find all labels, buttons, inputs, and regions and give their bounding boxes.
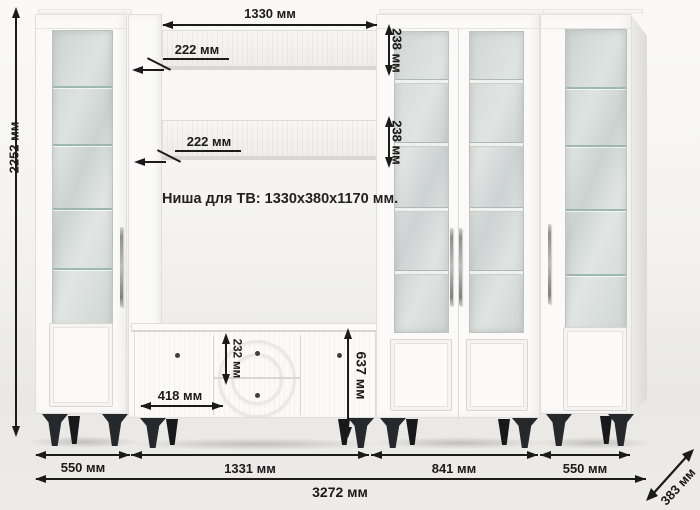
- cornice-line: [36, 28, 126, 29]
- dim-line: [131, 454, 369, 456]
- arrowhead: [162, 21, 173, 29]
- arrowhead: [35, 475, 46, 483]
- door-handle: [548, 224, 551, 304]
- dim-line: [36, 454, 130, 456]
- bookcase-shelf: [470, 270, 523, 275]
- glass-door-panel: [565, 29, 627, 333]
- dim-label: 1330 мм: [205, 6, 335, 21]
- arrowhead: [12, 7, 20, 18]
- dim-line: [347, 332, 349, 434]
- dim-line: [36, 478, 646, 480]
- arrowhead: [366, 21, 377, 29]
- arrowhead: [344, 328, 352, 339]
- glass-shelf: [53, 268, 112, 270]
- dim-label: 637 мм: [354, 342, 369, 410]
- door-knob: [175, 353, 180, 358]
- glass-shelf: [566, 87, 626, 89]
- dim-leader-line: [175, 150, 241, 152]
- bookcase-shelf: [395, 270, 448, 275]
- dim-line: [540, 454, 630, 456]
- arrowhead: [540, 451, 551, 459]
- door-handle: [120, 227, 123, 307]
- dim-label: 418 мм: [146, 388, 214, 403]
- dim-label: 841 мм: [379, 461, 529, 476]
- stand-divider: [300, 335, 301, 415]
- lower-panel: [390, 339, 452, 411]
- glass-shelf: [566, 145, 626, 147]
- arrowhead: [344, 427, 352, 438]
- glass-shelf: [566, 274, 626, 276]
- right-display-cabinet: [540, 14, 632, 414]
- arrowhead: [358, 451, 369, 459]
- arrowhead: [212, 402, 223, 410]
- glass-door-panel: [52, 30, 113, 330]
- dim-line: [371, 454, 538, 456]
- glass-shelf: [53, 86, 112, 88]
- arrowhead: [35, 451, 46, 459]
- dim-line: [15, 13, 17, 433]
- door-knob: [337, 353, 342, 358]
- arrowhead: [132, 66, 143, 74]
- arrowhead: [619, 451, 630, 459]
- bookcase-shelf: [470, 79, 523, 84]
- floor-shadow: [28, 436, 140, 448]
- dim-label: 222 мм: [166, 42, 228, 57]
- bookcase-right-glass-door: [469, 31, 524, 333]
- arrowhead: [527, 451, 538, 459]
- cabinet-side-face: [632, 16, 647, 414]
- arrowhead: [119, 451, 130, 459]
- dim-label: 238 мм: [390, 16, 405, 86]
- bookcase-shelf: [395, 207, 448, 212]
- glass-shelf: [53, 208, 112, 210]
- bookcase-shelf: [470, 207, 523, 212]
- lower-panel: [466, 339, 528, 411]
- door-gap-line: [458, 29, 459, 419]
- drawer-knob: [255, 351, 260, 356]
- floor-shadow: [536, 437, 652, 449]
- left-display-cabinet: [35, 14, 127, 414]
- arrowhead: [140, 402, 151, 410]
- tv-niche-note: Ниша для ТВ: 1330x380x1170 мм.: [162, 191, 398, 207]
- dim-label: 3272 мм: [270, 485, 410, 500]
- glass-shelf: [53, 144, 112, 146]
- dim-leader-line: [163, 58, 229, 60]
- dim-label: 232 мм: [229, 327, 244, 391]
- arrowhead: [134, 158, 145, 166]
- door-handle: [459, 228, 462, 306]
- dim-label: 550 мм: [548, 461, 622, 476]
- dim-label: 1331 мм: [175, 461, 325, 476]
- dim-label: 550 мм: [46, 460, 120, 475]
- bookcase-shelf: [470, 142, 523, 147]
- arrowhead: [12, 426, 20, 437]
- dim-label: 222 мм: [178, 134, 240, 149]
- dim-label: 2252 мм: [7, 112, 22, 184]
- arrowhead: [371, 451, 382, 459]
- furniture-dimension-diagram: Ниша для ТВ: 1330x380x1170 мм. 2252 мм 1…: [0, 0, 700, 510]
- lower-panel: [49, 323, 113, 407]
- dim-line: [141, 405, 223, 407]
- lower-panel: [563, 327, 627, 411]
- arrowhead: [131, 451, 142, 459]
- dim-label: 238 мм: [390, 108, 405, 178]
- glass-shelf: [566, 209, 626, 211]
- drawer-knob: [255, 393, 260, 398]
- door-handle: [450, 228, 453, 306]
- dim-line: [163, 24, 377, 26]
